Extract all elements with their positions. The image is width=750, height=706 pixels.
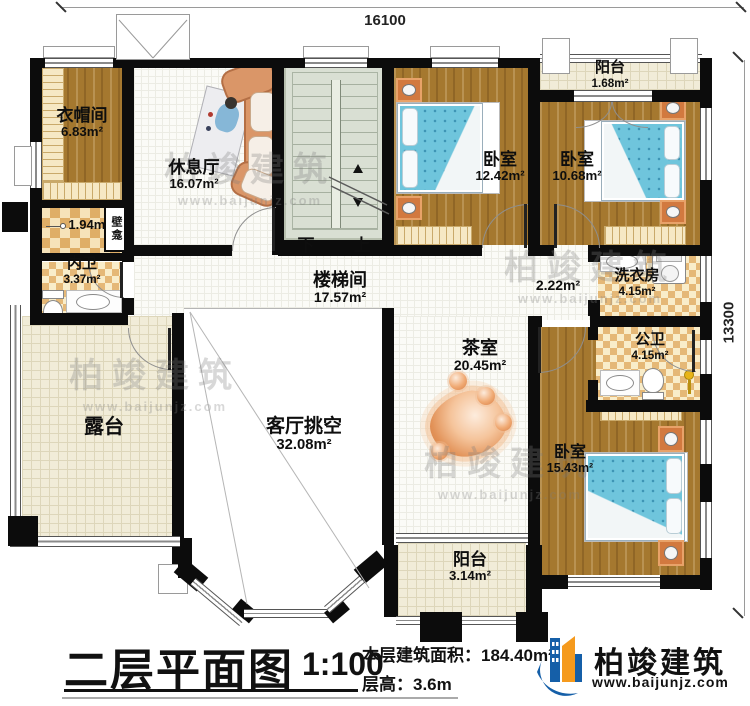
room-label-lounge: 休息厅16.07m²: [146, 158, 242, 192]
title-underline: [62, 697, 458, 699]
room-label-balcony-bottom: 阳台3.14m²: [412, 550, 528, 584]
room-label-stair-hall: 楼梯间17.57m²: [290, 270, 390, 306]
room-label-bedroom-bottom: 卧室15.43m²: [522, 444, 618, 476]
floor-area-text: 本层建筑面积：184.40m²: [362, 641, 554, 666]
stair-up-label: 上: [350, 236, 374, 255]
room-label-terrace: 露台: [56, 416, 152, 438]
floor-plan: 16100 13300: [0, 0, 750, 706]
room-label-wall-niche: 壁龛: [104, 206, 126, 252]
stair-down-label: 下: [294, 236, 318, 255]
title-underline: [64, 689, 358, 692]
room-label-corridor: 2.22m²: [522, 278, 594, 294]
room-label-living-void: 客厅挑空32.08m²: [246, 416, 362, 454]
room-label-laundry: 洗衣房4.15m²: [590, 268, 684, 298]
room-label-balcony-top: 阳台1.68m²: [562, 60, 658, 90]
brand-logo-icon: [532, 632, 588, 698]
brand-website: www.baijunjz.com: [592, 674, 729, 690]
room-label-cloakroom: 衣帽间6.83m²: [38, 106, 126, 140]
floor-height-text: 层高：3.6m: [362, 670, 452, 695]
room-label-public-bath: 公卫4.15m²: [602, 332, 698, 362]
room-label-bedroom-mid: 卧室10.68m²: [530, 150, 624, 184]
room-label-tea-room: 茶室20.45m²: [424, 338, 536, 374]
room-label-inner-bath: 内卫3.37m²: [40, 256, 124, 286]
